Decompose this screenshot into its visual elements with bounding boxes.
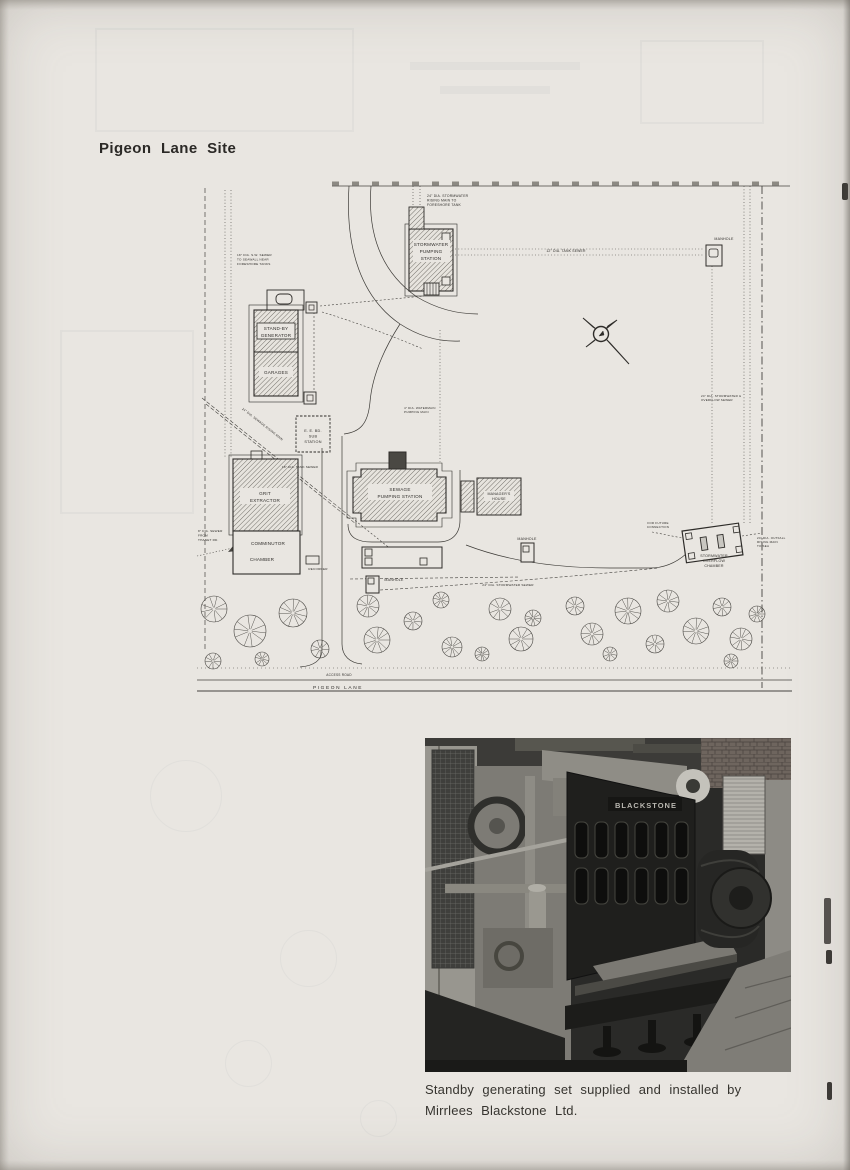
building-standby-generator-garages (249, 290, 304, 402)
plan-label: MANHOLE (517, 537, 537, 541)
plan-label: GRIT (259, 491, 271, 496)
north-arrow-icon (583, 318, 629, 364)
page-edge-shadow (0, 1160, 850, 1170)
plan-trees (201, 590, 765, 669)
plan-label: 18" DIA. S.W. SEWER (237, 253, 272, 257)
ghost-print (150, 760, 222, 832)
plan-label: PUMPING (420, 249, 443, 254)
plan-label: THANET RD. (198, 538, 219, 542)
page-edge-shadow (0, 0, 9, 1170)
plan-label: HOUSE (492, 497, 506, 501)
ghost-print (95, 28, 354, 132)
page-edge-shadow (0, 0, 850, 10)
ghost-print (360, 1100, 397, 1137)
scan-artifact (826, 950, 832, 964)
site-plan-drawing: 24" DIA. STORMWATERRISING MAIN TOFORESHO… (190, 178, 802, 704)
scan-artifact (827, 1082, 832, 1100)
tree-symbol (713, 598, 731, 616)
ghost-print (640, 40, 764, 124)
tree-symbol (724, 654, 738, 668)
tree-symbol (566, 597, 584, 615)
plan-label: OVERFLOW SEWER (701, 398, 733, 402)
generator-photo: BLACKSTONE (425, 738, 791, 1072)
plan-label: MANHOLE (714, 237, 734, 241)
plan-label: MANAGER'S (487, 492, 510, 496)
plan-label: FORESHORE TANKS (237, 262, 270, 266)
plan-label: CHAMBER (704, 564, 724, 568)
plan-label: STORMWATER (700, 554, 728, 558)
plan-label: 24" DIA. SEWAGE RISING MAIN (241, 407, 284, 442)
plan-label: 18" DIA. TANK SEWER (282, 465, 319, 469)
tree-symbol (404, 612, 422, 630)
plan-label: ACCESS ROAD (326, 673, 352, 677)
plan-label: GARAGES (264, 370, 288, 375)
plan-label: SEWAGE (389, 487, 410, 492)
plan-label: CHAMBER (250, 557, 275, 562)
tree-symbol (489, 598, 511, 620)
building-comminutor-chamber (233, 531, 319, 574)
plan-label: EXTRACTOR (250, 498, 281, 503)
plan-label: MANHOLE (384, 578, 404, 582)
engine-brand-plate: BLACKSTONE (615, 801, 677, 810)
tree-symbol (255, 652, 269, 666)
scan-artifact (824, 898, 831, 944)
ghost-print (440, 86, 550, 94)
plan-label: 12" DIA. TANK SEWER (546, 249, 586, 253)
plan-boundary (197, 184, 792, 692)
photo-caption: Standby generating set supplied and inst… (425, 1080, 795, 1122)
plan-label: CONNECTION (647, 525, 669, 529)
page-edge-shadow (843, 0, 850, 1170)
plan-label: TO SEA (757, 544, 769, 548)
plan-label: STORMWATER (414, 242, 449, 247)
plan-label: 8" DIA. SEWER (198, 529, 223, 533)
plan-label: RECORDER (308, 567, 328, 571)
plan-label: TO SEAWALL NEAR (237, 258, 269, 262)
tree-symbol (525, 610, 541, 626)
tree-symbol (615, 598, 641, 624)
tree-symbol (311, 640, 329, 658)
plan-label: STATION (304, 440, 321, 444)
plan-label: PUMPING MAIN (404, 410, 429, 414)
plan-label: RISING MAIN TO (427, 199, 457, 203)
plan-label: FORESHORE TANK (427, 203, 461, 207)
tree-symbol (475, 647, 489, 661)
photo-caption-line2: Mirrlees Blackstone Ltd. (425, 1101, 795, 1122)
plan-roads (300, 186, 686, 667)
tree-symbol (205, 653, 221, 669)
tree-symbol (646, 635, 664, 653)
building-managers-house (461, 478, 521, 515)
plan-label: SUB (309, 435, 318, 439)
ghost-print (410, 62, 580, 70)
plan-label: 24" DIA. STORMWATER (427, 194, 469, 198)
page-title: Pigeon Lane Site (99, 140, 236, 157)
tree-symbol (581, 623, 603, 645)
scan-artifact (842, 183, 848, 200)
plan-label: PIGEON LANE (313, 685, 363, 691)
photo-caption-line1: Standby generating set supplied and inst… (425, 1080, 795, 1101)
tree-symbol (749, 606, 765, 622)
tree-symbol (603, 647, 617, 661)
plan-label: E. E. BD. (304, 429, 321, 433)
tree-symbol (730, 628, 752, 650)
tree-symbol (442, 637, 462, 657)
page: Pigeon Lane Site (0, 0, 850, 1170)
engine-room-scene: BLACKSTONE (425, 738, 791, 1072)
tree-symbol (433, 592, 449, 608)
plan-label: STAND-BY (264, 326, 289, 331)
ghost-print (60, 330, 194, 514)
plan-label: GENERATOR (261, 333, 292, 338)
plan-label: OVERFLOW (703, 559, 726, 563)
tree-symbol (279, 599, 307, 627)
tree-symbol (364, 627, 390, 653)
ghost-print (280, 930, 337, 987)
tree-symbol (683, 618, 709, 644)
tree-symbol (657, 590, 679, 612)
plan-label: COMMINUTOR (251, 541, 286, 546)
plan-label: 24" DIA. STORMWATER SEWER (482, 583, 534, 587)
tree-symbol (509, 627, 533, 651)
tree-symbol (234, 615, 266, 647)
plan-label: FROM (198, 534, 208, 538)
ghost-print (225, 1040, 272, 1087)
plan-manholes (304, 245, 722, 593)
tree-symbol (357, 595, 379, 617)
plan-label: PUMPING STATION (378, 494, 423, 499)
plan-label: STATION (421, 256, 442, 261)
